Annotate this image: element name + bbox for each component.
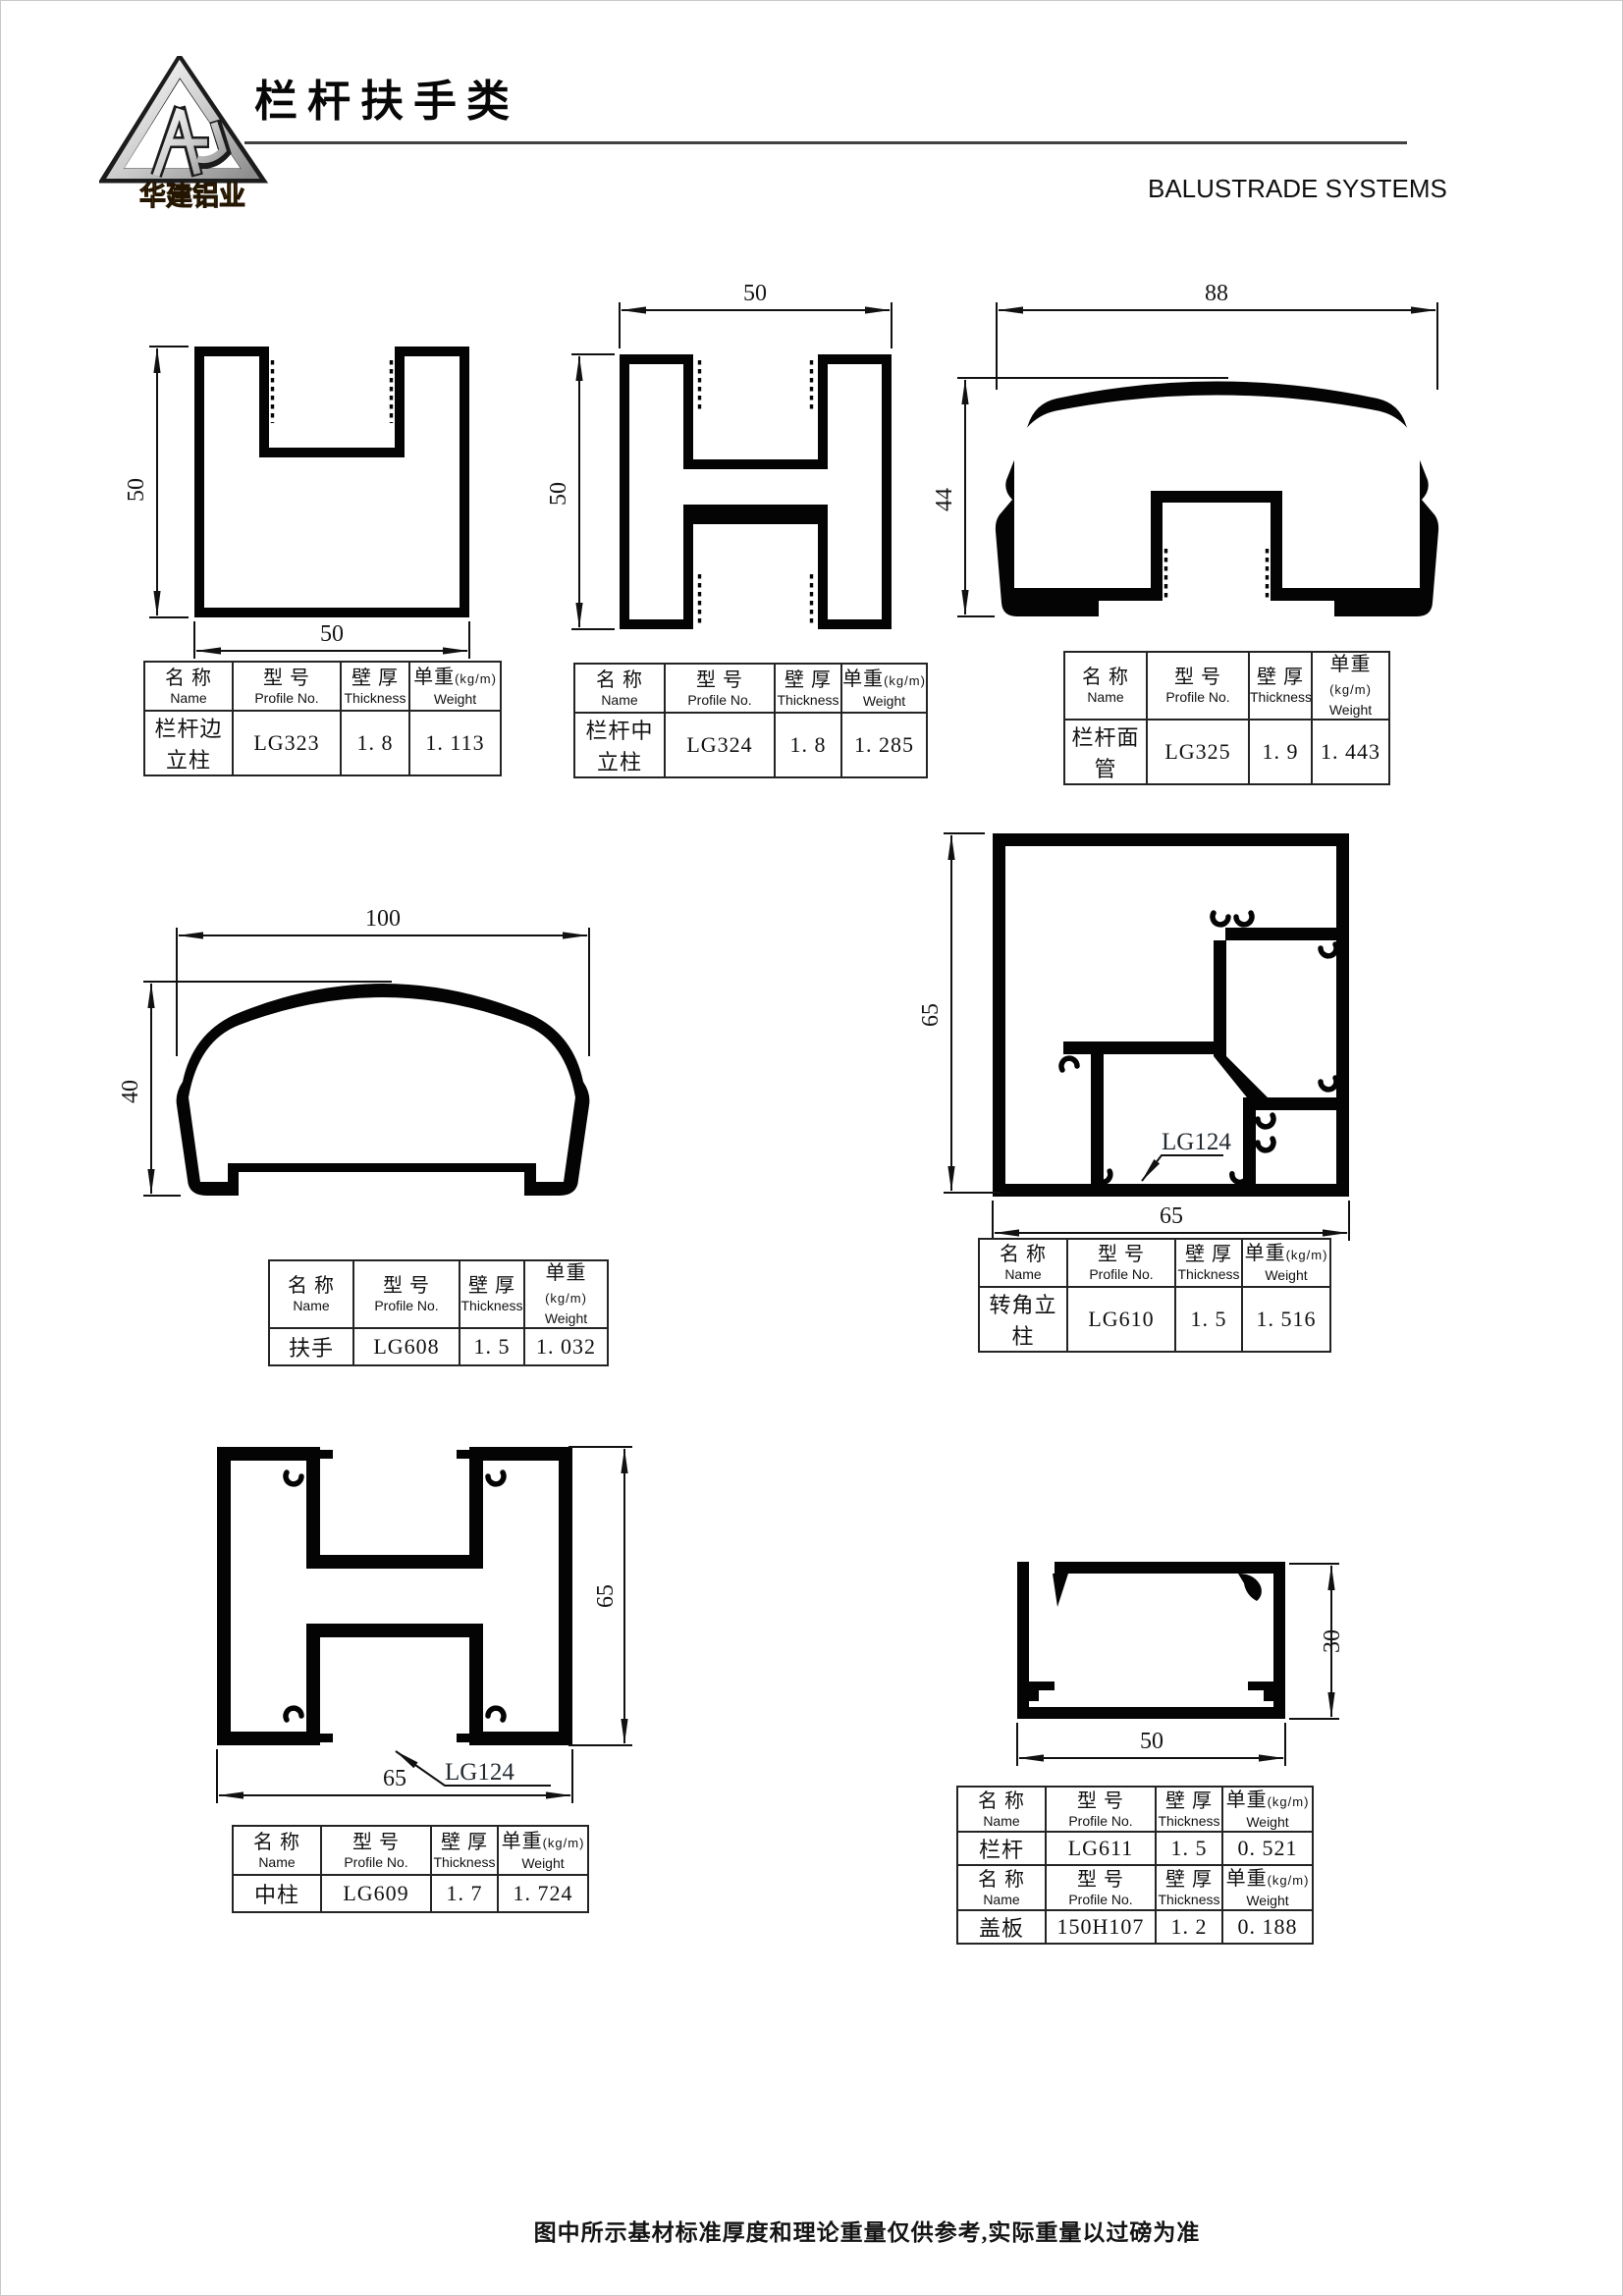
callout-lg124: LG124 <box>396 1751 551 1786</box>
dim-height-lg609: 65 <box>568 1447 632 1745</box>
col-wt-unit: (kg/m) <box>1329 682 1372 697</box>
dim-height-label: 50 <box>124 478 149 502</box>
cell-weight: 1. 285 <box>841 713 927 777</box>
col-wt-unit: (kg/m) <box>543 1836 585 1850</box>
profile-outline-lg611 <box>1017 1562 1285 1719</box>
col-wt-zh: 单重 <box>842 668 884 690</box>
cell-weight: 1. 113 <box>409 711 501 775</box>
drawing-lg608: 100 40 <box>107 909 649 1233</box>
logo-triangle-icon <box>111 66 254 176</box>
col-thk-zh: 壁 厚 <box>1157 1868 1221 1892</box>
col-thk-zh: 壁 厚 <box>342 667 408 690</box>
table-header-row: 名 称Name 型 号Profile No. 壁 厚Thickness 单重(k… <box>1064 652 1389 720</box>
cell-name: 中柱 <box>233 1875 321 1912</box>
table-header-row: 名 称Name 型 号Profile No. 壁 厚Thickness 单重(k… <box>269 1260 608 1328</box>
col-wt-en: Weight <box>1313 702 1388 719</box>
col-wt-unit: (kg/m) <box>455 671 497 686</box>
col-name-en: Name <box>1065 689 1146 706</box>
cell-no: LG611 <box>1046 1832 1156 1865</box>
cell-no: 150H107 <box>1046 1910 1156 1944</box>
col-no-en: Profile No. <box>1047 1892 1155 1908</box>
dim-width-label: 50 <box>743 281 767 306</box>
col-no-zh: 型 号 <box>354 1274 459 1298</box>
drawing-lg610: 65 65 LG124 <box>912 814 1408 1254</box>
header-rule <box>244 141 1407 144</box>
col-no-en: Profile No. <box>1047 1813 1155 1830</box>
col-thk-en: Thickness <box>1157 1892 1221 1908</box>
spec-table-lg608: 名 称Name 型 号Profile No. 壁 厚Thickness 单重(k… <box>268 1259 609 1366</box>
cell-weight: 0. 188 <box>1222 1910 1313 1944</box>
col-no-zh: 型 号 <box>1047 1789 1155 1813</box>
dim-width-lg324: 50 <box>620 281 892 348</box>
cell-thickness: 1. 9 <box>1249 720 1312 784</box>
dim-height-lg610: 65 <box>918 833 1001 1193</box>
table-header-row: 名 称Name 型 号Profile No. 壁 厚Thickness 单重(k… <box>957 1865 1313 1910</box>
logo-text: 华建铝业 <box>139 181 245 211</box>
dim-height-lg611: 30 <box>1289 1564 1345 1719</box>
col-no-zh: 型 号 <box>1148 666 1248 689</box>
cell-weight: 1. 032 <box>524 1328 608 1365</box>
cell-no: LG608 <box>353 1328 460 1365</box>
cell-no: LG610 <box>1067 1287 1175 1352</box>
cell-thickness: 1. 8 <box>341 711 409 775</box>
drawing-lg323: 50 50 <box>117 325 502 668</box>
cell-thickness: 1. 5 <box>1175 1287 1242 1352</box>
col-wt-zh: 单重 <box>1330 654 1372 675</box>
col-name-en: Name <box>958 1892 1045 1908</box>
dim-width-label: 100 <box>365 909 401 932</box>
dim-width-label: 65 <box>1160 1203 1183 1229</box>
col-no-zh: 型 号 <box>322 1831 430 1854</box>
dim-width-label: 50 <box>320 621 344 647</box>
cell-thickness: 1. 5 <box>1156 1832 1222 1865</box>
cell-name: 栏杆中立柱 <box>574 713 665 777</box>
cell-weight: 0. 521 <box>1222 1832 1313 1865</box>
col-wt-en: Weight <box>1223 1814 1312 1831</box>
col-no-zh: 型 号 <box>666 668 774 692</box>
table-header-row: 名 称Name 型 号Profile No. 壁 厚Thickness 单重(k… <box>979 1239 1330 1287</box>
dim-height-label: 40 <box>118 1080 143 1103</box>
cell-thickness: 1. 7 <box>431 1875 498 1912</box>
dim-width-lg609: 65 <box>217 1749 572 1803</box>
col-thk-zh: 壁 厚 <box>432 1831 497 1854</box>
dim-height-lg324: 50 <box>546 354 615 629</box>
col-no-en: Profile No. <box>234 690 340 707</box>
spec-table-lg609: 名 称Name 型 号Profile No. 壁 厚Thickness 单重(k… <box>232 1825 589 1913</box>
cell-weight: 1. 516 <box>1242 1287 1330 1352</box>
col-wt-zh: 单重 <box>546 1262 587 1284</box>
col-thk-en: Thickness <box>776 692 840 709</box>
table-row: 栏杆边立柱 LG323 1. 8 1. 113 <box>144 711 501 775</box>
col-thk-en: Thickness <box>1157 1813 1221 1830</box>
dim-height-label: 65 <box>593 1584 619 1608</box>
callout-label: LG124 <box>445 1759 514 1786</box>
spec-table-lg325: 名 称Name 型 号Profile No. 壁 厚Thickness 单重(k… <box>1063 651 1390 785</box>
spec-table-lg610: 名 称Name 型 号Profile No. 壁 厚Thickness 单重(k… <box>978 1238 1331 1353</box>
dim-width-label: 65 <box>383 1766 406 1791</box>
catalog-page: 华建铝业 栏杆扶手类 BALUSTRADE SYSTEMS 50 50 <box>0 0 1623 2296</box>
cell-name: 栏杆面管 <box>1064 720 1147 784</box>
page-title: 栏杆扶手类 <box>254 66 519 129</box>
col-wt-en: Weight <box>499 1855 587 1872</box>
col-no-en: Profile No. <box>354 1298 459 1314</box>
table-header-row: 名 称Name 型 号Profile No. 壁 厚Thickness 单重(k… <box>233 1826 588 1875</box>
table-row: 转角立柱 LG610 1. 5 1. 516 <box>979 1287 1330 1352</box>
table-row: 扶手 LG608 1. 5 1. 032 <box>269 1328 608 1365</box>
table-row: 中柱 LG609 1. 7 1. 724 <box>233 1875 588 1912</box>
col-wt-en: Weight <box>1243 1267 1329 1284</box>
dim-height-label: 65 <box>918 1003 944 1027</box>
drawing-lg325: 88 44 <box>934 262 1469 655</box>
col-thk-zh: 壁 厚 <box>776 668 840 692</box>
drawing-lg609: 65 65 LG124 <box>195 1430 652 1821</box>
col-thk-en: Thickness <box>432 1854 497 1871</box>
col-name-zh: 名 称 <box>980 1243 1066 1266</box>
col-thk-zh: 壁 厚 <box>1176 1243 1241 1266</box>
cell-name: 扶手 <box>269 1328 353 1365</box>
page-subtitle: BALUSTRADE SYSTEMS <box>1148 174 1447 204</box>
cell-no: LG609 <box>321 1875 431 1912</box>
cell-thickness: 1. 5 <box>460 1328 524 1365</box>
callout-lg124: LG124 <box>1142 1129 1231 1181</box>
dim-height-label: 44 <box>934 488 957 511</box>
col-name-zh: 名 称 <box>958 1868 1045 1892</box>
dim-height-label: 30 <box>1320 1629 1345 1653</box>
col-name-zh: 名 称 <box>575 668 664 692</box>
col-name-en: Name <box>145 690 232 707</box>
spec-table-lg323: 名 称Name 型 号Profile No. 壁 厚Thickness 单重(k… <box>143 661 502 776</box>
col-no-en: Profile No. <box>1148 689 1248 706</box>
drawing-lg324: 50 50 <box>546 264 941 657</box>
col-no-zh: 型 号 <box>1068 1243 1174 1266</box>
table-header-row: 名 称Name 型 号Profile No. 壁 厚Thickness 单重(k… <box>957 1787 1313 1832</box>
cell-weight: 1. 443 <box>1312 720 1389 784</box>
col-wt-zh: 单重 <box>1226 1789 1268 1811</box>
dim-width-label: 50 <box>1140 1729 1163 1754</box>
dim-height-lg323: 50 <box>124 347 189 617</box>
dim-width-lg611: 50 <box>1017 1723 1285 1766</box>
cell-name: 栏杆边立柱 <box>144 711 233 775</box>
col-wt-unit: (kg/m) <box>545 1291 587 1306</box>
col-wt-zh: 单重 <box>1245 1243 1286 1264</box>
dim-width-label: 88 <box>1205 281 1228 306</box>
col-thk-en: Thickness <box>1176 1266 1241 1283</box>
profile-outline-lg609 <box>217 1447 572 1745</box>
table-header-row: 名 称Name 型 号Profile No. 壁 厚Thickness 单重(k… <box>144 662 501 711</box>
cell-name: 栏杆 <box>957 1832 1046 1865</box>
col-name-zh: 名 称 <box>958 1789 1045 1813</box>
col-wt-unit: (kg/m) <box>1286 1248 1328 1262</box>
cell-weight: 1. 724 <box>498 1875 588 1912</box>
cell-no: LG325 <box>1147 720 1249 784</box>
table-header-row: 名 称Name 型 号Profile No. 壁 厚Thickness 单重(k… <box>574 664 927 713</box>
col-name-en: Name <box>270 1298 352 1314</box>
dim-width-lg325: 88 <box>997 281 1437 390</box>
col-no-zh: 型 号 <box>234 667 340 690</box>
profile-outline-lg608 <box>177 984 590 1196</box>
col-thk-en: Thickness <box>342 690 408 707</box>
table-row: 栏杆中立柱 LG324 1. 8 1. 285 <box>574 713 927 777</box>
col-wt-zh: 单重 <box>1226 1868 1268 1890</box>
col-wt-unit: (kg/m) <box>884 673 926 688</box>
col-name-zh: 名 称 <box>234 1831 320 1854</box>
table-row: 盖板 150H107 1. 2 0. 188 <box>957 1910 1313 1944</box>
footer-note: 图中所示基材标准厚度和理论重量仅供参考,实际重量以过磅为准 <box>504 2214 1230 2247</box>
col-wt-unit: (kg/m) <box>1268 1873 1310 1888</box>
col-name-zh: 名 称 <box>270 1274 352 1298</box>
col-name-en: Name <box>575 692 664 709</box>
spec-table-lg324: 名 称Name 型 号Profile No. 壁 厚Thickness 单重(k… <box>573 663 928 778</box>
table-row: 栏杆面管 LG325 1. 9 1. 443 <box>1064 720 1389 784</box>
drawing-lg611: 30 50 <box>973 1532 1385 1778</box>
col-thk-en: Thickness <box>1250 689 1311 706</box>
col-wt-zh: 单重 <box>413 667 455 688</box>
cell-thickness: 1. 2 <box>1156 1910 1222 1944</box>
cell-thickness: 1. 8 <box>775 713 841 777</box>
col-no-en: Profile No. <box>666 692 774 709</box>
cell-name: 转角立柱 <box>979 1287 1067 1352</box>
col-thk-zh: 壁 厚 <box>1250 666 1311 689</box>
col-wt-unit: (kg/m) <box>1268 1794 1310 1809</box>
col-no-zh: 型 号 <box>1047 1868 1155 1892</box>
col-name-zh: 名 称 <box>1065 666 1146 689</box>
col-wt-en: Weight <box>842 693 926 710</box>
cell-no: LG323 <box>233 711 341 775</box>
col-no-en: Profile No. <box>322 1854 430 1871</box>
col-name-en: Name <box>958 1813 1045 1830</box>
col-no-en: Profile No. <box>1068 1266 1174 1283</box>
col-thk-zh: 壁 厚 <box>1157 1789 1221 1813</box>
dim-width-lg610: 65 <box>993 1201 1349 1241</box>
table-row: 栏杆 LG611 1. 5 0. 521 <box>957 1832 1313 1865</box>
col-thk-en: Thickness <box>460 1298 523 1314</box>
col-wt-en: Weight <box>1223 1893 1312 1909</box>
dim-height-label: 50 <box>546 482 571 506</box>
cell-name: 盖板 <box>957 1910 1046 1944</box>
col-thk-zh: 壁 厚 <box>460 1274 523 1298</box>
callout-label: LG124 <box>1162 1129 1231 1155</box>
profile-outline-lg325 <box>996 382 1438 631</box>
dim-width-lg323: 50 <box>194 621 469 659</box>
col-name-en: Name <box>234 1854 320 1871</box>
col-name-en: Name <box>980 1266 1066 1283</box>
col-wt-en: Weight <box>410 691 500 708</box>
col-wt-en: Weight <box>525 1310 607 1327</box>
col-wt-zh: 单重 <box>502 1831 543 1852</box>
col-name-zh: 名 称 <box>145 667 232 690</box>
profile-outline-lg323 <box>194 347 469 617</box>
cell-no: LG324 <box>665 713 775 777</box>
spec-table-lg611-cover: 名 称Name 型 号Profile No. 壁 厚Thickness 单重(k… <box>956 1786 1314 1945</box>
profile-outline-lg324 <box>620 354 892 629</box>
